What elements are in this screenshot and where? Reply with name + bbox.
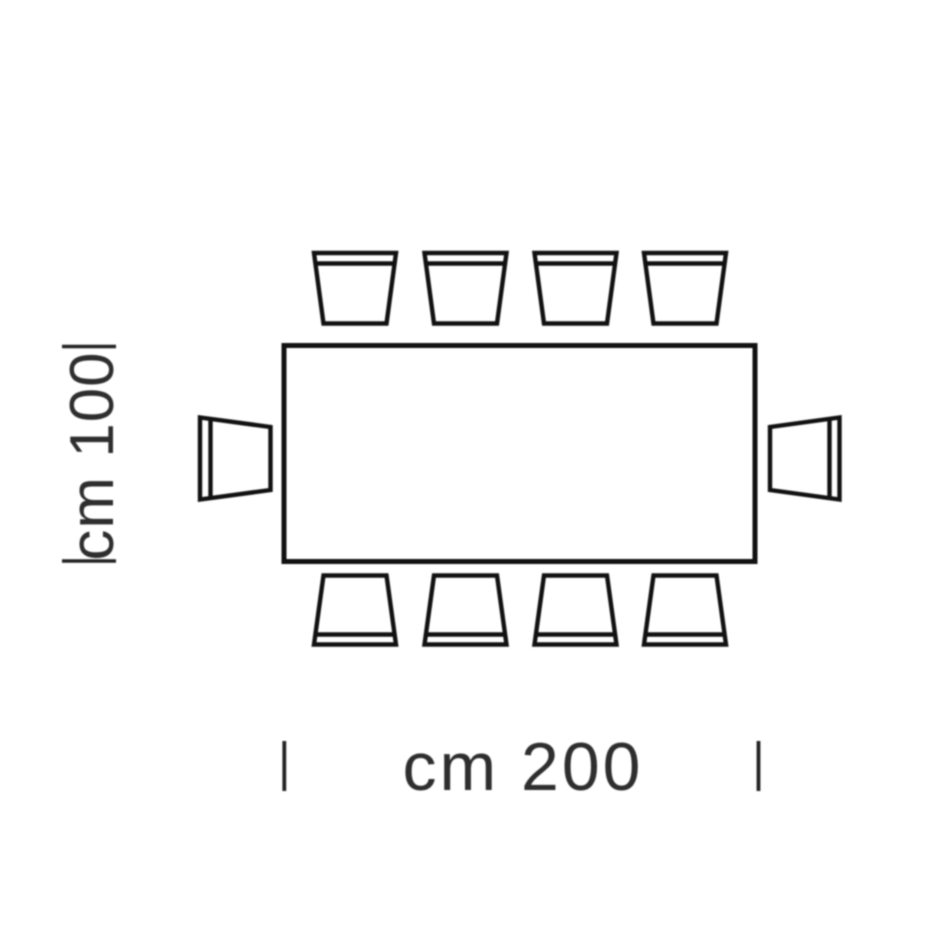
svg-text:cm 200: cm 200 <box>403 729 644 805</box>
svg-text:cm 100: cm 100 <box>58 351 127 560</box>
